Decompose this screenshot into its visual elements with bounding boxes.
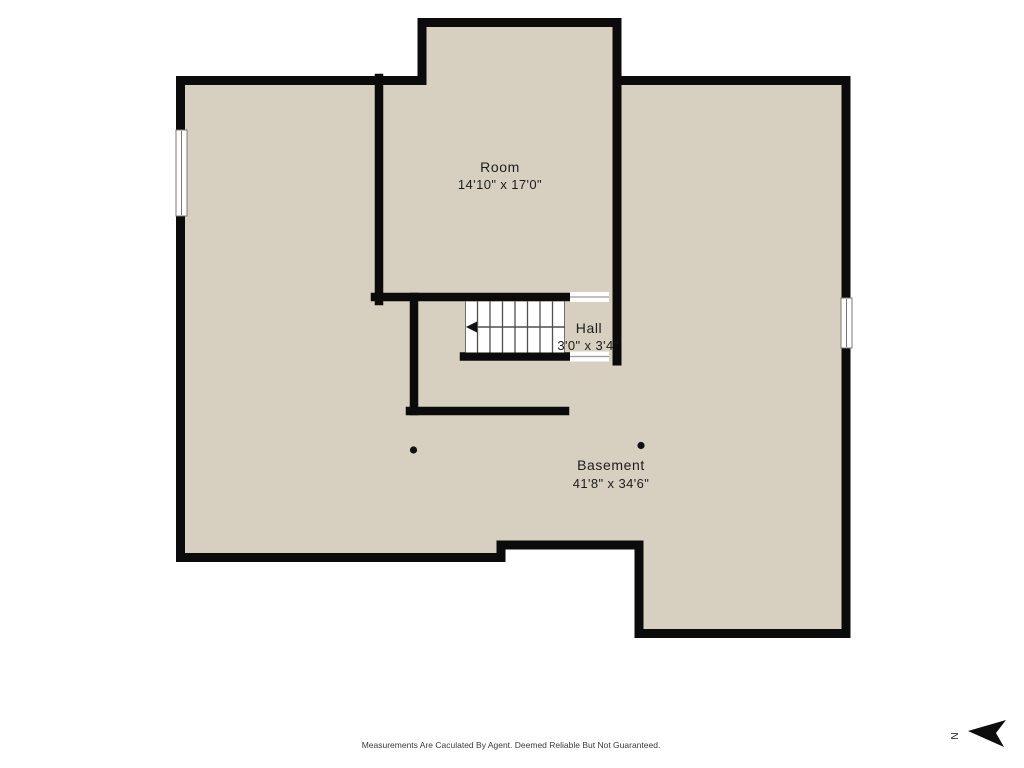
floor-plan-drawing: Room 14'10" x 17'0" Hall 3'0" x 3'4" Bas…	[0, 0, 1024, 768]
floor-plan-page: Room 14'10" x 17'0" Hall 3'0" x 3'4" Bas…	[0, 0, 1024, 768]
room-dimensions: 14'10" x 17'0"	[458, 177, 542, 192]
left-window	[176, 130, 187, 216]
hall-dimensions: 3'0" x 3'4"	[557, 338, 618, 353]
disclaimer: Measurements Are Caculated By Agent. Dee…	[362, 740, 661, 750]
support-column-dot	[410, 446, 417, 453]
staircase	[465, 302, 565, 353]
support-column-dot	[637, 442, 644, 449]
basement-label: Basement	[577, 457, 645, 473]
hall-label: Hall	[576, 320, 603, 336]
north-compass: N	[950, 720, 1006, 747]
north-label: N	[950, 732, 961, 739]
room-label: Room	[480, 159, 520, 175]
right-window	[841, 298, 852, 348]
north-arrow-icon	[968, 720, 1006, 747]
basement-dimensions: 41'8" x 34'6"	[573, 476, 650, 491]
